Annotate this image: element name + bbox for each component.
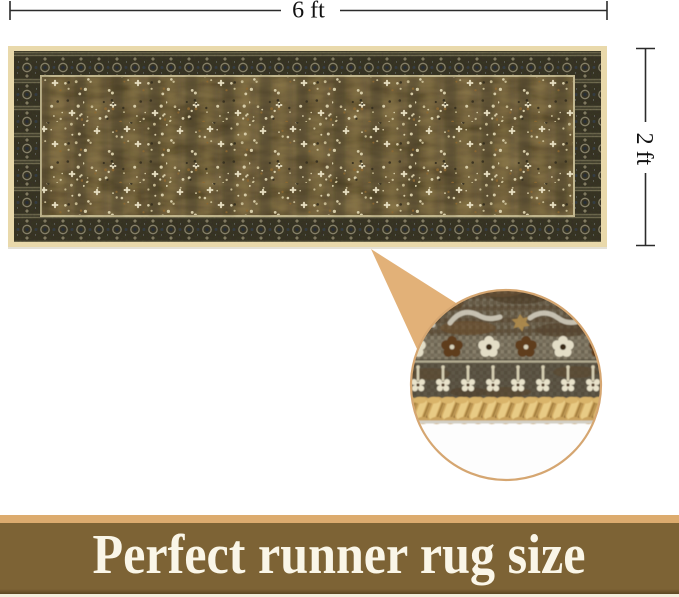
svg-text:Perfect runner rug size: Perfect runner rug size: [93, 524, 586, 586]
svg-text:2 ft: 2 ft: [631, 133, 657, 166]
svg-text:6 ft: 6 ft: [292, 0, 325, 24]
